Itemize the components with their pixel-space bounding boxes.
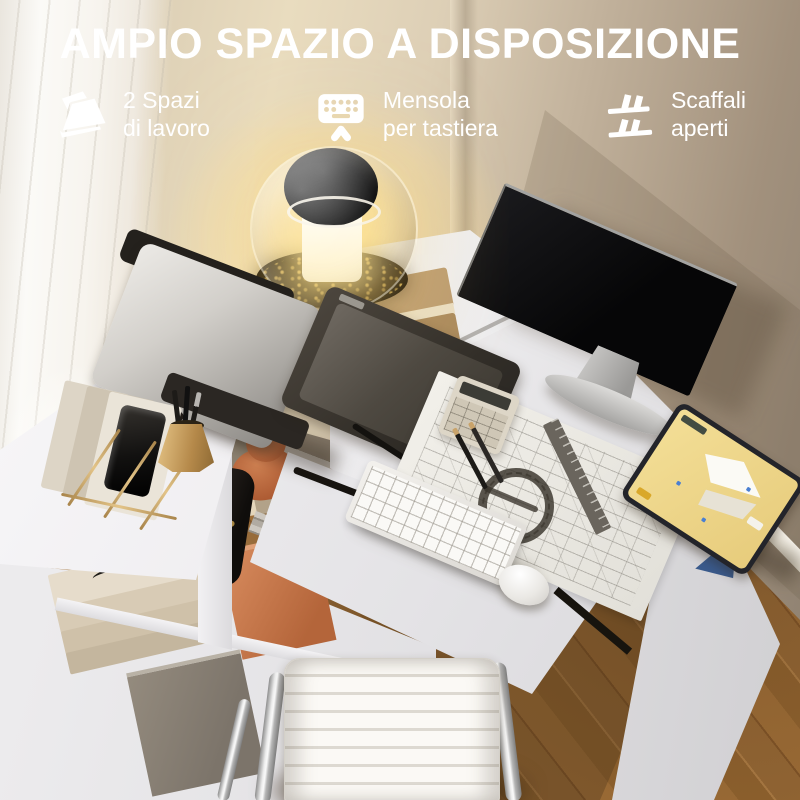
feature-list: 2 Spazi di lavoro xyxy=(52,85,746,143)
page-title: AMPIO SPAZIO A DISPOSIZIONE xyxy=(28,20,772,69)
feature-label: Scaffali aperti xyxy=(671,86,746,142)
app-toolbar xyxy=(680,414,707,435)
feature-open-shelves: Scaffali aperti xyxy=(600,85,746,143)
feature-workspaces: 2 Spazi di lavoro xyxy=(52,85,210,143)
open-shelves-icon xyxy=(600,85,658,143)
feature-label: Mensola per tastiera xyxy=(383,86,498,142)
keyboard-tray-icon xyxy=(312,85,370,143)
ui-marker xyxy=(701,517,707,523)
promo-image: DANTE xyxy=(0,0,800,800)
office-chair-backrest xyxy=(284,658,500,800)
feature-label: 2 Spazi di lavoro xyxy=(123,86,210,142)
ui-marker xyxy=(676,481,682,487)
feature-keyboard-shelf: Mensola per tastiera xyxy=(312,85,498,143)
ui-chip xyxy=(746,516,764,531)
two-tier-desk-icon xyxy=(52,85,110,143)
header: AMPIO SPAZIO A DISPOSIZIONE xyxy=(0,0,800,143)
ui-chip xyxy=(636,487,652,501)
